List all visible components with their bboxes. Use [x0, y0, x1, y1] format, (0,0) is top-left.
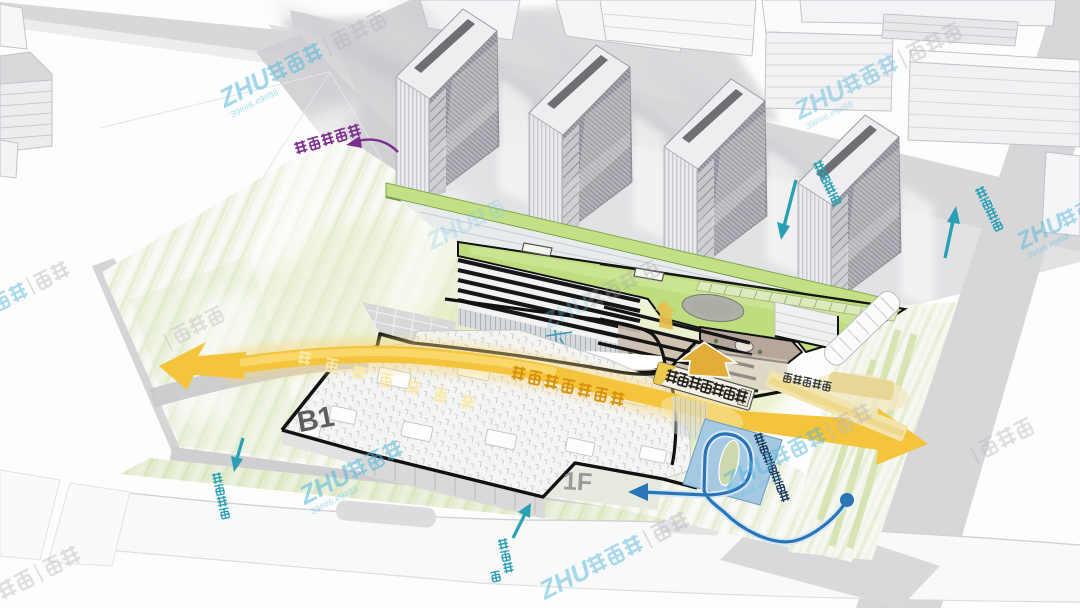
svg-text:1F: 1F — [562, 467, 593, 496]
